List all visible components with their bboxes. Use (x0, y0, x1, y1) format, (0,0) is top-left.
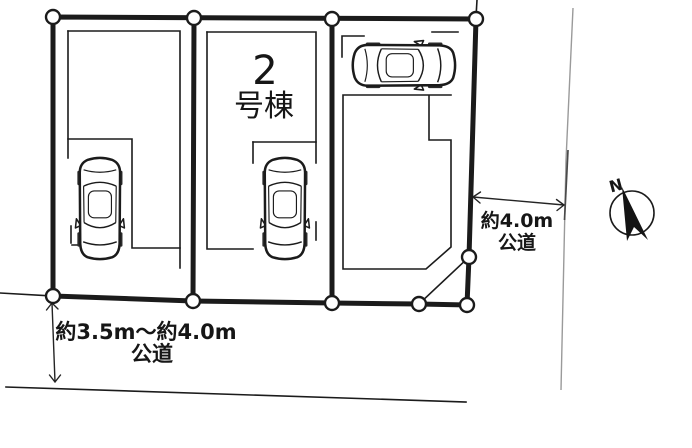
survey-point-circle (46, 10, 60, 24)
south-road-width-label: 約3.5m〜約4.0m (55, 320, 236, 344)
site-plan-svg: N 2 号棟 約3.5m〜約4.0m 公道 約4.0m 公道 (0, 0, 692, 448)
road-east (473, 0, 573, 390)
compass: N (607, 175, 654, 241)
road-south (0, 293, 466, 402)
survey-point-circle (187, 11, 201, 25)
building-suffix-label: 号棟 (234, 89, 294, 124)
east-road-kind-label: 公道 (498, 231, 536, 254)
building-number-label: 2 (252, 48, 277, 94)
east-road-width-label: 約4.0m (481, 209, 553, 232)
survey-point-circle (460, 298, 474, 312)
survey-point-circle (186, 294, 200, 308)
car-icon-lot-3 (353, 41, 455, 90)
lot-divider-1 (193, 18, 194, 301)
survey-point-circle (462, 250, 476, 264)
compass-north-label: N (607, 175, 625, 197)
corner-chamfer-line (419, 257, 469, 304)
road-east-far-boundary (561, 8, 573, 390)
car-icon-lot-1 (75, 158, 124, 259)
survey-point-circle (325, 296, 339, 310)
survey-point-circle (469, 12, 483, 26)
site-plan-diagram: N 2 号棟 約3.5m〜約4.0m 公道 約4.0m 公道 (0, 0, 692, 448)
south-road-kind-label: 公道 (131, 342, 173, 366)
car-icon-lot-2 (260, 158, 309, 259)
survey-point-circle (412, 297, 426, 311)
road-east-dimension-line (473, 192, 564, 211)
survey-point-circle (46, 289, 60, 303)
road-south-far-edge (6, 387, 466, 402)
survey-point-circle (325, 12, 339, 26)
